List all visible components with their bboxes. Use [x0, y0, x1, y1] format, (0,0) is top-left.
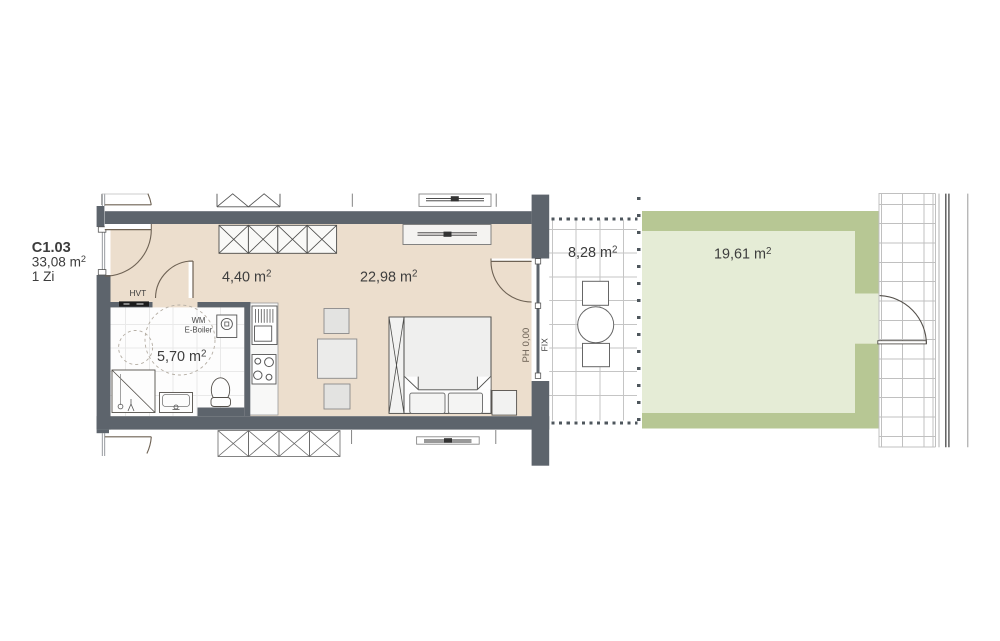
svg-text:8,28 m2: 8,28 m2	[568, 245, 617, 262]
svg-text:1 Zi: 1 Zi	[32, 269, 55, 284]
svg-text:4,40 m2: 4,40 m2	[222, 269, 271, 286]
svg-text:WM: WM	[192, 316, 206, 325]
svg-text:PH 0,00: PH 0,00	[521, 328, 532, 363]
svg-text:5,70 m2: 5,70 m2	[157, 349, 206, 366]
svg-text:FIX: FIX	[539, 338, 549, 352]
svg-text:HVT: HVT	[130, 288, 147, 298]
svg-text:19,61 m2: 19,61 m2	[714, 246, 771, 263]
svg-text:33,08 m2: 33,08 m2	[32, 254, 86, 270]
svg-text:22,98 m2: 22,98 m2	[360, 269, 417, 286]
svg-text:E-Boiler: E-Boiler	[185, 326, 213, 335]
